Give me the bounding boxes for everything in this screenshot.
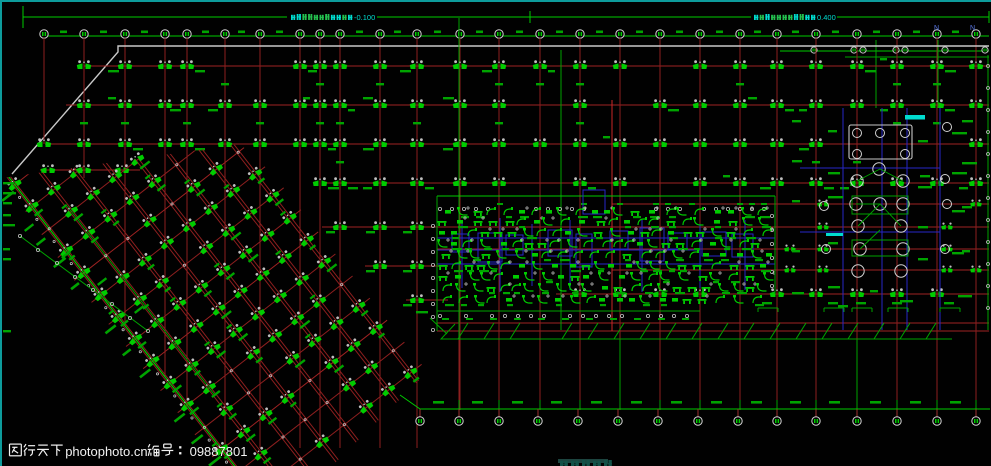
svg-text:photophoto.cn: photophoto.cn: [65, 444, 147, 459]
svg-text:0.400: 0.400: [817, 13, 836, 22]
svg-text:09887801: 09887801: [190, 444, 248, 459]
svg-text:-0.100: -0.100: [354, 13, 375, 22]
svg-text:N: N: [934, 25, 939, 32]
svg-text:N: N: [970, 25, 975, 32]
